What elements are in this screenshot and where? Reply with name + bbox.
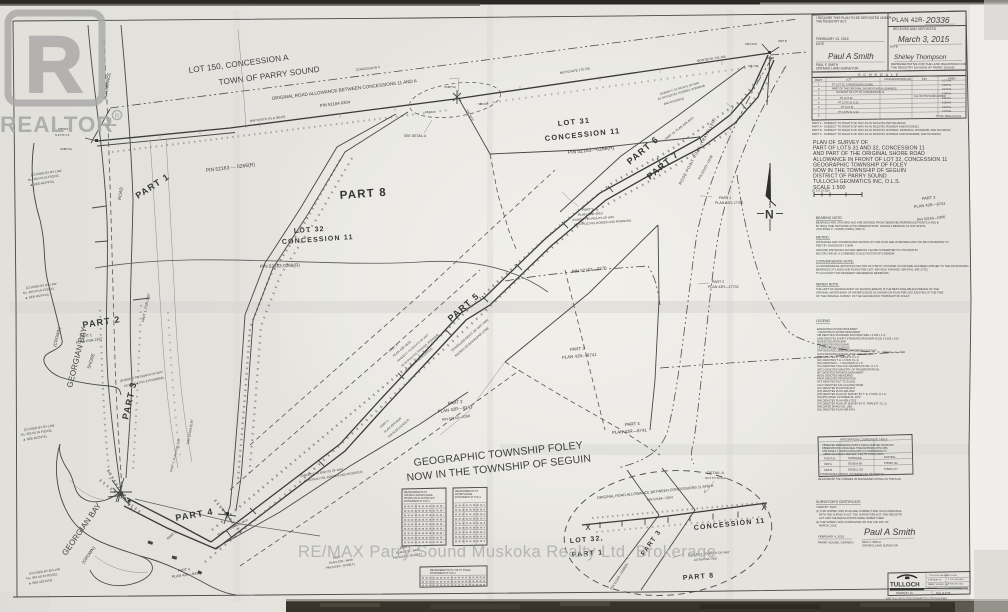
svg-text:SSIB(TG): SSIB(TG) — [444, 85, 456, 89]
svg-text:NORTHING: NORTHING — [848, 456, 862, 460]
svg-text:INSTRUMENT AT STN ⊙: INSTRUMENT AT STN ⊙ — [455, 496, 481, 499]
svg-text:PT LOTS 31 & 32: PT LOTS 31 & 32 — [838, 101, 859, 105]
svg-text:5010811.125: 5010811.125 — [848, 467, 864, 471]
svg-text:DISTANCES AND COORDINATES SHOW: DISTANCES AND COORDINATES SHOWN ON THIS … — [816, 240, 949, 244]
svg-text:ORP B: ORP B — [778, 39, 787, 43]
svg-text:20336: 20336 — [925, 15, 950, 25]
svg-text:WATER'S EDGE: WATER'S EDGE — [455, 493, 473, 496]
svg-text:RECEIVED AND DEPOSITED: RECEIVED AND DEPOSITED — [893, 27, 937, 31]
svg-text:FILE 11-5718: FILE 11-5718 — [936, 592, 951, 595]
svg-text:MEASUREMENTS TO: MEASUREMENTS TO — [404, 491, 427, 494]
svg-text:10 5 0 10: 10 5 0 10 25m — [812, 189, 831, 193]
svg-text:DETAIL A: DETAIL A — [707, 471, 724, 475]
svg-text:SURVEYOR'S CERTIFICATE: SURVEYOR'S CERTIFICATE — [816, 500, 861, 504]
svg-text:3.08 HA.: 3.08 HA. — [942, 93, 952, 96]
svg-text:(1) THIS SURVEY AND PLAN ARE C: (1) THIS SURVEY AND PLAN ARE CORRECT AND… — [816, 509, 902, 513]
svg-text:INSTRUMENT AT STN ⊙: INSTRUMENT AT STN ⊙ — [404, 500, 430, 503]
svg-text:NAD TULL-297-11-5718 GEOMATICS: NAD TULL-297-11-5718 GEOMATICS-LOTS PLAN… — [886, 598, 947, 601]
svg-text:REALTOR: REALTOR — [0, 112, 114, 137]
svg-text:FEBRUARY 13, 2015: FEBRUARY 13, 2015 — [816, 37, 849, 41]
svg-text:PT LOT 31: PT LOT 31 — [841, 105, 854, 109]
svg-text:INSTRUMENT AT STN ⊙: INSTRUMENT AT STN ⊙ — [430, 572, 456, 575]
svg-text:ACT AND THE REGULATIONS MADE U: ACT AND THE REGULATIONS MADE UNDER THEM. — [819, 516, 885, 520]
svg-text:PT LOT 32, CONCESSION 11 AND: PT LOT 32, CONCESSION 11 AND — [832, 83, 873, 87]
svg-text:PARRY SOUND, ONTARIO: PARRY SOUND, ONTARIO — [818, 541, 854, 545]
svg-text:N: N — [765, 208, 774, 222]
svg-text:BEARINGS ARE UTM GRID AND ARE: BEARINGS ARE UTM GRID AND ARE DERIVED FR… — [816, 220, 939, 224]
svg-text:LEGEND: LEGEND — [816, 319, 830, 323]
svg-text:RE-ESTABLISH THE CORNERS OR BO: RE-ESTABLISH THE CORNERS OR BOUNDARIES S… — [818, 478, 901, 481]
svg-text:P2A 1W6: P2A 1W6 — [928, 587, 938, 590]
svg-text:IN FRONT OF LOT 32, CONCESSION: IN FRONT OF LOT 32, CONCESSION 11 — [836, 90, 885, 94]
svg-text:DATE: DATE — [816, 42, 824, 46]
svg-text:T 705 746-5434: T 705 746-5434 — [948, 579, 964, 581]
svg-text:METRIC:: METRIC: — [816, 236, 830, 240]
svg-text:0.11 HA.: 0.11 HA. — [942, 97, 952, 100]
svg-text:F 705 746-7341: F 705 746-7341 — [948, 584, 964, 586]
svg-text:MEASUREMENTS TO: MEASUREMENTS TO — [455, 490, 478, 493]
svg-text:(2) THE SURVEY WAS COMPLETED O: (2) THE SURVEY WAS COMPLETED ON THE 13th… — [816, 520, 889, 524]
svg-text:5010814.98: 5010814.98 — [848, 462, 862, 466]
svg-text:(D1) DENOTES PLAN 42R-8741: (D1) DENOTES PLAN 42R-8741 — [817, 408, 855, 412]
svg-text:PARRY SOUND, ON: PARRY SOUND, ON — [928, 583, 949, 586]
svg-text:R: R — [115, 113, 120, 120]
svg-text:MULTIPLYING BY A COMBINED SCAL: MULTIPLYING BY A COMBINED SCALE FACTOR O… — [816, 251, 895, 255]
svg-text:THE REGISTRY ACT.: THE REGISTRY ACT. — [816, 20, 847, 24]
svg-text:R: R — [25, 20, 83, 109]
svg-text:SSIB(TG): SSIB(TG) — [60, 147, 72, 151]
svg-text:PART: PART — [815, 78, 822, 82]
svg-text:ORIGINAL WATER'S EDGE: ORIGINAL WATER'S EDGE — [404, 494, 433, 497]
svg-text:URBAN ACCURACY PER SEC. 14(2): URBAN ACCURACY PER SEC. 14(2) OF O.REG 2… — [823, 453, 884, 456]
svg-text:0.07 HA.: 0.07 HA. — [942, 110, 952, 113]
svg-text:BEARINGS OF LANDS AND PLANS PS: BEARINGS OF LANDS AND PLANS PSR-2197, 42… — [816, 267, 928, 271]
svg-text:March 3, 2015: March 3, 2015 — [898, 35, 950, 44]
svg-text:RE/MAX Parry Sound Muskoka Rea: RE/MAX Parry Sound Muskoka Realty Ltd, B… — [298, 543, 716, 561]
svg-text:CONVERGENCE NOTE:: CONVERGENCE NOTE: — [816, 260, 854, 264]
svg-text:0.19 HA.: 0.19 HA. — [942, 106, 952, 109]
svg-text:MARCH, 2015.: MARCH, 2015. — [819, 524, 837, 528]
svg-text:SHOWN ON PLAN PSR-2197: SHOWN ON PLAN PSR-2197 — [404, 497, 435, 500]
svg-text:866 226-9681: 866 226-9681 — [948, 588, 962, 590]
svg-text:PLAN 42R—17702: PLAN 42R—17702 — [708, 285, 739, 289]
svg-text:0.17 HA.: 0.17 HA. — [942, 88, 952, 91]
svg-text:TOTAL AREA: TOTAL AREA — [936, 114, 952, 118]
svg-text:ORIGINAL WATER BANK OF WATER': ORIGINAL WATER BANK OF WATER'S EDGE AS S… — [816, 290, 944, 294]
svg-text:PART OF THE ORIGINAL SHORE ROA: PART OF THE ORIGINAL SHORE ROAD ALLOWANC… — [832, 86, 897, 90]
svg-text:WATER NOTE:: WATER NOTE: — [816, 283, 839, 287]
svg-text:575535.740: 575535.740 — [884, 461, 898, 465]
svg-text:UTM ZONE 17, NAD83 (CSRS) (199: UTM ZONE 17, NAD83 (CSRS) (1997.0). — [816, 227, 866, 231]
svg-text:TULLOCH GEOMATICS INC.: TULLOCH GEOMATICS INC. — [929, 574, 958, 577]
svg-text:FEET BY DIVIDING BY 0.3048.: FEET BY DIVIDING BY 0.3048. — [816, 243, 854, 247]
svg-text:Shirley Thompson: Shirley Thompson — [894, 54, 947, 61]
svg-text:DATE: DATE — [890, 45, 898, 49]
svg-text:TO ACCOUNT FOR DIFFERENT REFER: TO ACCOUNT FOR DIFFERENT REFERENCE MERID… — [816, 271, 890, 275]
svg-text:1B 634: 1B 634 — [425, 110, 434, 114]
svg-text:LOT: LOT — [846, 78, 852, 82]
svg-text:I CERTIFY THAT:: I CERTIFY THAT: — [816, 505, 837, 509]
svg-text:PT LOT 32: PT LOT 32 — [840, 96, 853, 100]
svg-text:FEBRUARY 4, 2015: FEBRUARY 4, 2015 — [818, 535, 844, 539]
svg-text:PART 9 - SUBJECT TO RIGHTS O: PART 9 - SUBJECT TO RIGHTS OF WAY AS IN … — [812, 132, 941, 136]
svg-text:GROUND DISTANCES SHOWN HEREON: GROUND DISTANCES SHOWN HEREON CAN BE CON… — [816, 248, 918, 252]
svg-text:PART 1: PART 1 — [719, 196, 731, 200]
svg-text:PLAN 42R-17702: PLAN 42R-17702 — [715, 201, 743, 205]
svg-text:PLAN 42R-: PLAN 42R- — [892, 18, 925, 24]
svg-text:6 SEGUIN ST.: 6 SEGUIN ST. — [928, 580, 942, 582]
svg-text:ONTARIO LAND SURVEYOR: ONTARIO LAND SURVEYOR — [862, 544, 898, 548]
svg-text:PART 2: PART 2 — [712, 280, 724, 284]
svg-text:OF THE ORIGINAL SURVEY OF THE: OF THE ORIGINAL SURVEY OF THE GEOGRAPHIC… — [816, 294, 910, 298]
svg-text:Paul A Smith: Paul A Smith — [828, 52, 874, 61]
svg-text:575853.477: 575853.477 — [884, 467, 898, 471]
svg-text:BY REAL TIME NETWORK (RTN) OBS: BY REAL TIME NETWORK (RTN) OBSERVATIONS,… — [816, 224, 926, 228]
svg-text:0.17 HA.: 0.17 HA. — [942, 79, 952, 82]
svg-text:BEARING NOTE:: BEARING NOTE: — [816, 216, 843, 220]
svg-text:THE REGISTRY DIVISION OF PARRY: THE REGISTRY DIVISION OF PARRY SOUND — [891, 65, 955, 69]
svg-text:0.26 HA.: 0.26 HA. — [942, 101, 952, 104]
svg-text:POINT ID: POINT ID — [824, 456, 835, 460]
svg-text:TULLOCH: TULLOCH — [890, 582, 920, 589]
svg-text:THE LIMIT OF GEORGIAN BAY AS S: THE LIMIT OF GEORGIAN BAY AS SHOWN HEREO… — [816, 287, 939, 291]
svg-text:SIB (WIT): SIB (WIT) — [745, 42, 757, 46]
svg-text:PT LOTS 31 & 32: PT LOTS 31 & 32 — [838, 110, 859, 114]
svg-text:SIB WIT: SIB WIT — [478, 102, 489, 106]
svg-text:NOT TO SCALE: NOT TO SCALE — [705, 476, 726, 480]
svg-text:DRAWN BY: DL: DRAWN BY: DL — [896, 592, 914, 595]
svg-text:ORP B: ORP B — [824, 468, 832, 472]
svg-text:INTEGRATION COORDINATE TABLE: INTEGRATION COORDINATE TABLE — [840, 438, 888, 442]
svg-text:WITH THE SURVEYS ACT, THE SURV: WITH THE SURVEYS ACT, THE SURVEYORS ACT,… — [819, 512, 903, 516]
svg-text:MEASUREMENTS TO UTILITY POLES: MEASUREMENTS TO UTILITY POLES — [430, 569, 471, 572]
svg-text:SIB 736: SIB 736 — [748, 64, 758, 68]
svg-text:COORDINATES CANNOT, IN THEMSEL: COORDINATES CANNOT, IN THEMSELVES, BE US… — [820, 473, 884, 476]
svg-text:2.15 HA.: 2.15 HA. — [952, 115, 962, 118]
svg-text:0.06 HA.: 0.06 HA. — [942, 84, 952, 87]
svg-text:SEE DETAIL A: SEE DETAIL A — [404, 134, 427, 138]
svg-text:EASTING: EASTING — [884, 455, 895, 459]
svg-text:PAUL F. SMITH: PAUL F. SMITH — [862, 540, 881, 544]
svg-text:A CONVERGENCE (ROTATION) FACTO: A CONVERGENCE (ROTATION) FACTOR OF 0°58'… — [816, 264, 969, 268]
svg-text:Paul A Smith: Paul A Smith — [864, 527, 915, 537]
svg-text:CONCESSION/PLAN: CONCESSION/PLAN — [884, 77, 911, 81]
svg-text:ORP A: ORP A — [824, 462, 832, 466]
svg-text:ONTARIO LAND SURVEYOR: ONTARIO LAND SURVEYOR — [816, 67, 859, 71]
svg-text:PIN: PIN — [922, 77, 927, 81]
